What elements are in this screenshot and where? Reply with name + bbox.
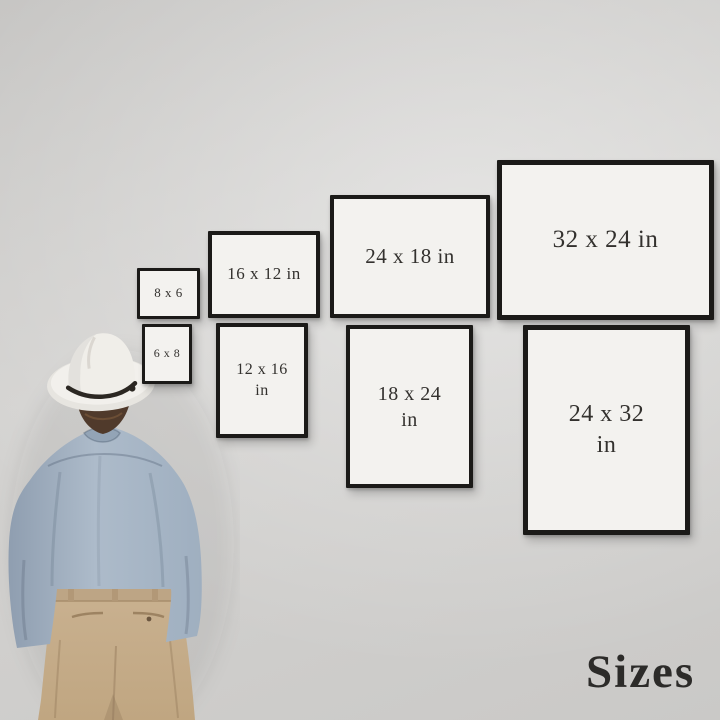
frame-size-text: in [378,407,442,433]
frame-size-label: 32 x 24 in [553,224,659,257]
sizes-title: Sizes [586,645,695,699]
frame-size-text: 16 x 12 in [227,263,300,285]
frame-size-text: in [569,430,645,461]
frame-size-label: 24 x 32in [569,399,645,461]
size-frame-12x16: 12 x 16in [216,323,308,438]
frame-size-text: 24 x 18 in [365,243,455,270]
frame-size-label: 6 x 8 [154,346,181,362]
frame-size-label: 24 x 18 in [365,243,455,270]
frame-size-label: 8 x 6 [154,285,183,302]
frame-size-text: 32 x 24 in [553,224,659,257]
frame-size-text: in [236,381,288,402]
frame-size-text: 24 x 32 [569,399,645,430]
frame-size-text: 8 x 6 [154,285,183,302]
frame-size-text: 12 x 16 [236,360,288,381]
size-frame-8x6: 8 x 6 [137,268,200,319]
frame-size-label: 16 x 12 in [227,263,300,285]
frame-size-text: 18 x 24 [378,381,442,407]
size-frame-6x8: 6 x 8 [142,324,192,384]
size-frame-18x24: 18 x 24in [346,325,473,488]
gallery-wall-scene: 8 x 616 x 12 in24 x 18 in32 x 24 in6 x 8… [0,0,720,720]
frame-size-label: 18 x 24in [378,381,442,433]
frames-layer: 8 x 616 x 12 in24 x 18 in32 x 24 in6 x 8… [0,0,720,720]
frame-size-text: 6 x 8 [154,346,181,362]
size-frame-24x32: 24 x 32in [523,325,690,535]
size-frame-32x24: 32 x 24 in [497,160,714,320]
size-frame-16x12: 16 x 12 in [208,231,320,318]
size-frame-24x18: 24 x 18 in [330,195,490,318]
frame-size-label: 12 x 16in [236,360,288,402]
